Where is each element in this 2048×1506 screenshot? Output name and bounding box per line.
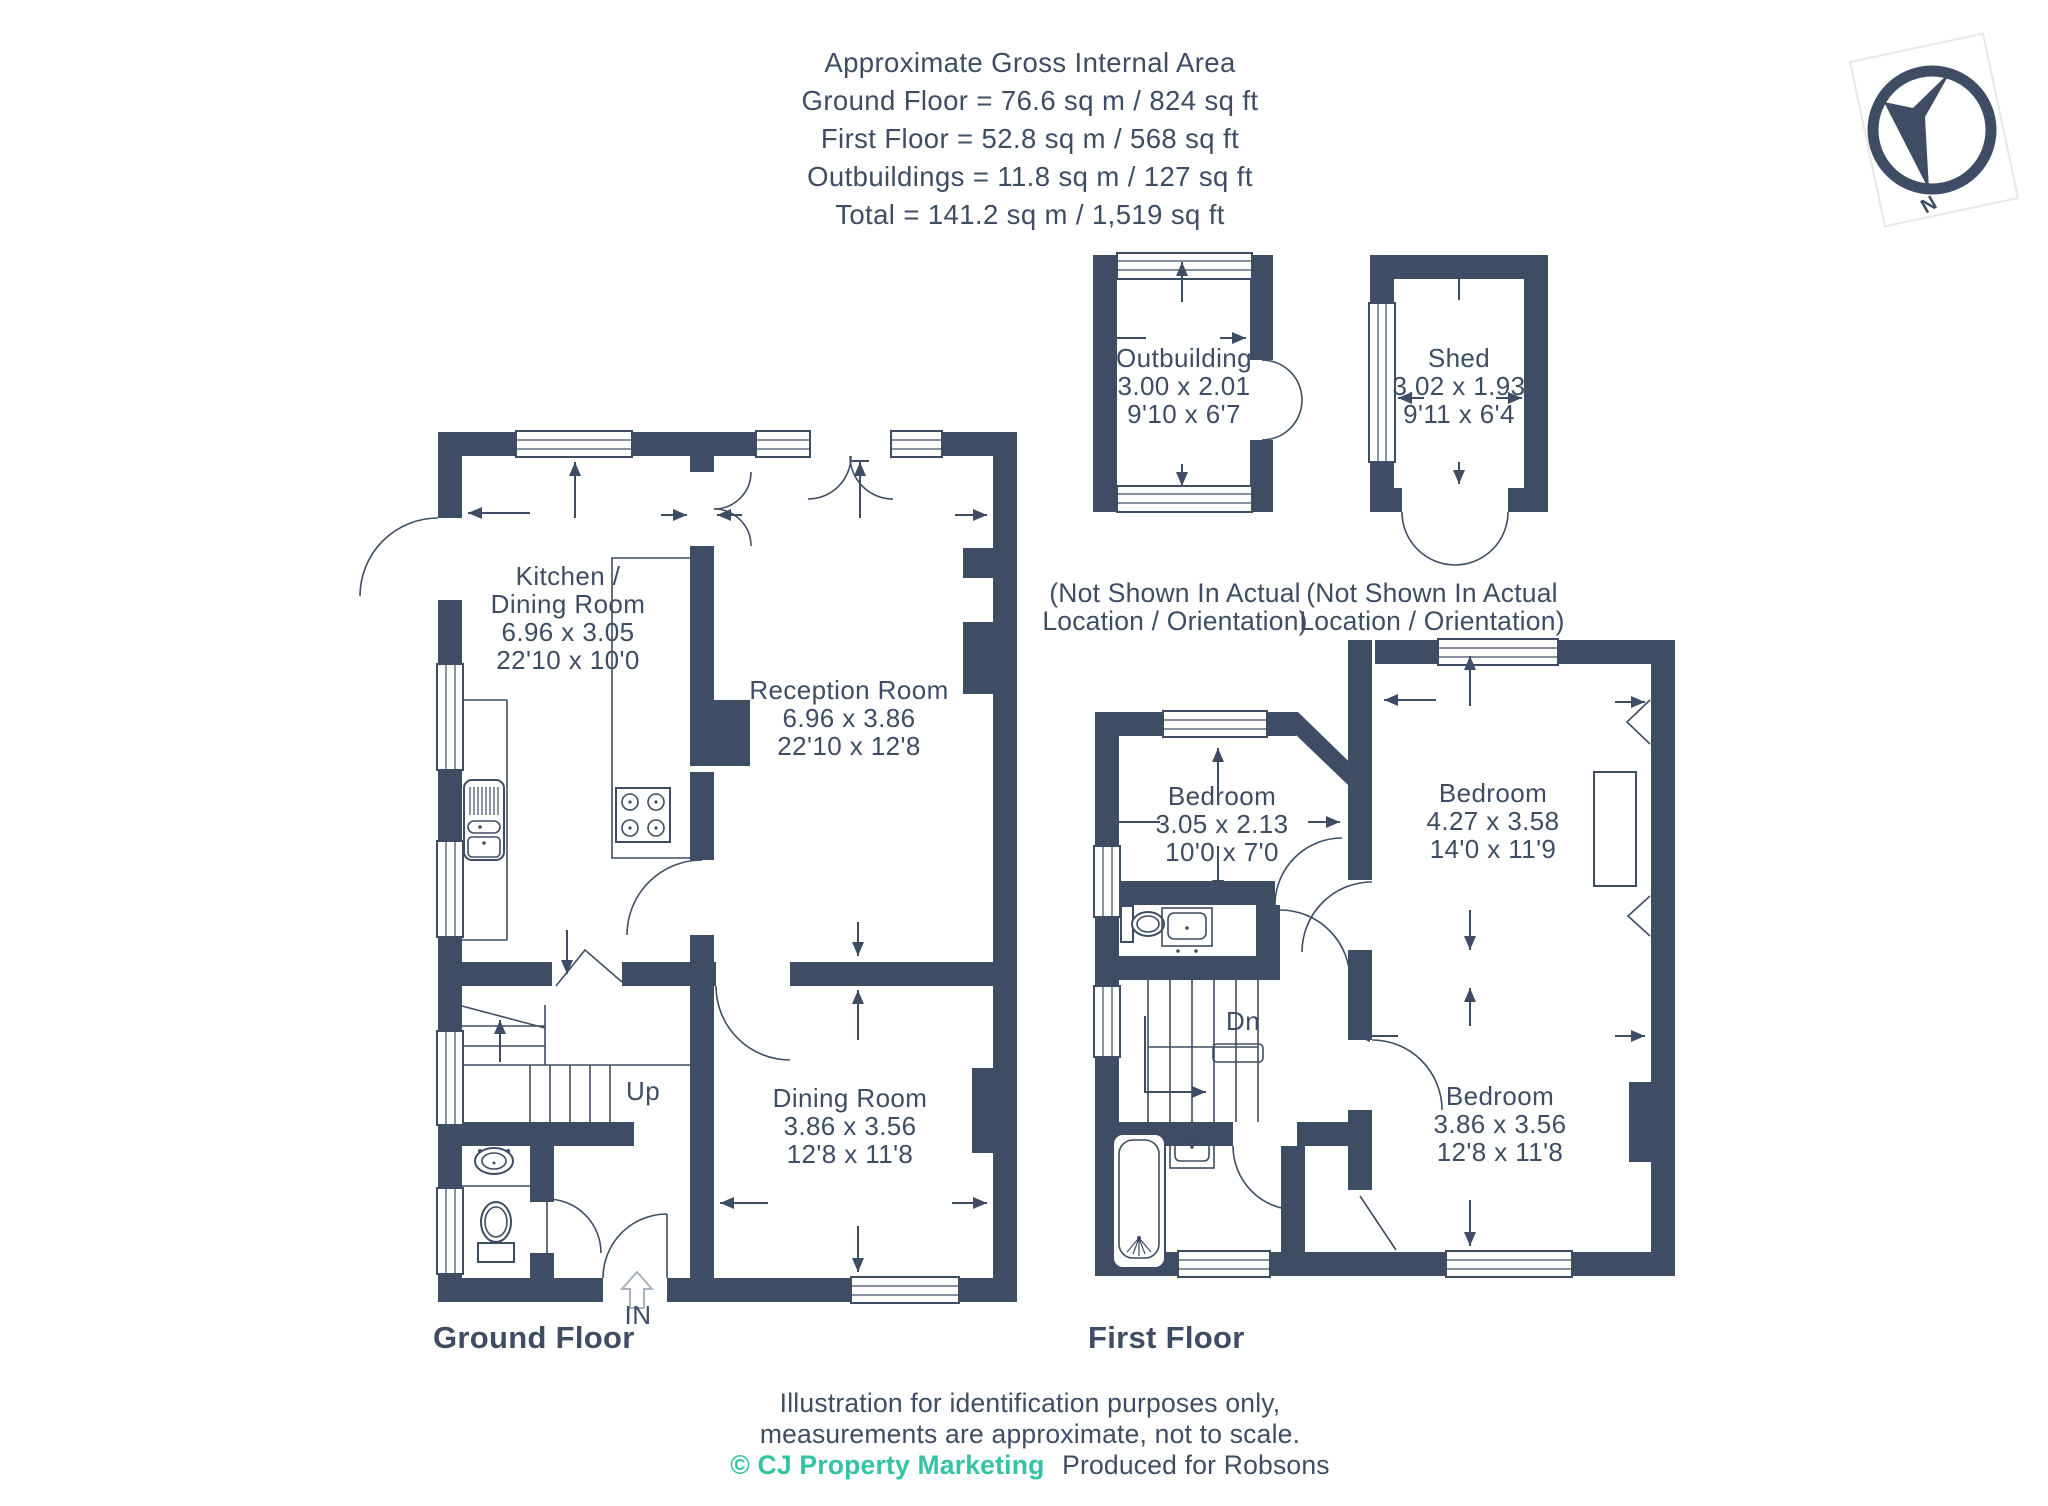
toilet-icon (478, 1202, 514, 1262)
room-label-kitchen-dining: Kitchen / Dining Room 6.96 x 3.05 22'10 … (491, 562, 646, 674)
wc-sink-icon (1162, 908, 1212, 953)
kitchen-sink-icon (464, 780, 504, 860)
first-floor-plan (1094, 639, 1675, 1277)
room-dims-metric: 3.05 x 2.13 (1155, 810, 1288, 838)
room-dims-imperial: 9'11 x 6'4 (1392, 400, 1525, 428)
copyright-text: © CJ Property Marketing (730, 1450, 1044, 1480)
room-name: Reception Room (749, 676, 948, 704)
note-line: Location / Orientation) (1299, 607, 1564, 635)
first-stairs-icon (1145, 980, 1263, 1122)
room-label-bedroom-main: Bedroom 4.27 x 3.58 14'0 x 11'9 (1426, 779, 1559, 863)
room-dims-imperial: 12'8 x 11'8 (773, 1140, 928, 1168)
note-line: Location / Orientation) (1042, 607, 1307, 635)
room-dims-imperial: 22'10 x 10'0 (491, 646, 646, 674)
room-dims-metric: 3.86 x 3.56 (773, 1112, 928, 1140)
room-label-dining: Dining Room 3.86 x 3.56 12'8 x 11'8 (773, 1084, 928, 1168)
room-name: Bedroom (1155, 782, 1288, 810)
room-dims-metric: 6.96 x 3.05 (491, 618, 646, 646)
note-line: (Not Shown In Actual (1299, 579, 1564, 607)
compass (1850, 34, 2018, 227)
footer-credits: © CJ Property Marketing Produced for Rob… (530, 1450, 1530, 1481)
room-label-shed: Shed 3.02 x 1.93 9'11 x 6'4 (1392, 344, 1525, 428)
wardrobe-icon (1594, 700, 1650, 936)
header-area-summary: Approximate Gross Internal Area Ground F… (530, 44, 1530, 234)
room-dims-metric: 3.02 x 1.93 (1392, 372, 1525, 400)
room-label-reception: Reception Room 6.96 x 3.86 22'10 x 12'8 (749, 676, 948, 760)
room-dims-imperial: 14'0 x 11'9 (1426, 835, 1559, 863)
bathtub-icon (1113, 1134, 1165, 1268)
stairs-up-label: Up (626, 1076, 660, 1107)
room-name: Dining Room (491, 590, 646, 618)
outbuilding-location-note: (Not Shown In Actual Location / Orientat… (1042, 579, 1307, 635)
shed-windows (1369, 303, 1395, 462)
footer-line: Illustration for identification purposes… (530, 1388, 1530, 1419)
room-dims-metric: 4.27 x 3.58 (1426, 807, 1559, 835)
first-floor-title: First Floor (1088, 1320, 1245, 1356)
footer-disclaimer: Illustration for identification purposes… (530, 1388, 1530, 1481)
note-line: (Not Shown In Actual (1042, 579, 1307, 607)
room-name: Kitchen / (491, 562, 646, 590)
header-line: Outbuildings = 11.8 sq m / 127 sq ft (530, 158, 1530, 196)
wc-basin-icon (462, 1148, 530, 1186)
room-dims-metric: 6.96 x 3.86 (749, 704, 948, 732)
room-name: Bedroom (1426, 779, 1559, 807)
outbuilding-doors (1262, 360, 1302, 440)
floorplan-page: Approximate Gross Internal Area Ground F… (0, 0, 2048, 1506)
room-dims-metric: 3.86 x 3.56 (1433, 1110, 1566, 1138)
header-line: Approximate Gross Internal Area (530, 44, 1530, 82)
ground-floor-title: Ground Floor (433, 1320, 635, 1356)
stairs-down-label: Dn (1226, 1006, 1260, 1037)
header-line: Total = 141.2 sq m / 1,519 sq ft (530, 196, 1530, 234)
room-label-bedroom-rear: Bedroom 3.86 x 3.56 12'8 x 11'8 (1433, 1082, 1566, 1166)
hob-icon (616, 788, 670, 842)
ground-floor-plan (360, 431, 1017, 1308)
room-dims-metric: 3.00 x 2.01 (1116, 372, 1252, 400)
room-name: Bedroom (1433, 1082, 1566, 1110)
room-name: Outbuilding (1116, 344, 1252, 372)
shed-location-note: (Not Shown In Actual Location / Orientat… (1299, 579, 1564, 635)
room-name: Dining Room (773, 1084, 928, 1112)
bathroom-sink-icon (1170, 1126, 1214, 1168)
header-line: Ground Floor = 76.6 sq m / 824 sq ft (530, 82, 1530, 120)
wc-toilet-icon (1121, 906, 1164, 942)
header-line: First Floor = 52.8 sq m / 568 sq ft (530, 120, 1530, 158)
room-name: Shed (1392, 344, 1525, 372)
room-dims-imperial: 10'0 x 7'0 (1155, 838, 1288, 866)
room-dims-imperial: 9'10 x 6'7 (1116, 400, 1252, 428)
room-dims-imperial: 22'10 x 12'8 (749, 732, 948, 760)
room-label-outbuilding: Outbuilding 3.00 x 2.01 9'10 x 6'7 (1116, 344, 1252, 428)
shed-doors (1402, 512, 1508, 565)
produced-for-text: Produced for Robsons (1062, 1450, 1330, 1480)
room-dims-imperial: 12'8 x 11'8 (1433, 1138, 1566, 1166)
footer-line: measurements are approximate, not to sca… (530, 1419, 1530, 1450)
room-label-bedroom-front: Bedroom 3.05 x 2.13 10'0 x 7'0 (1155, 782, 1288, 866)
